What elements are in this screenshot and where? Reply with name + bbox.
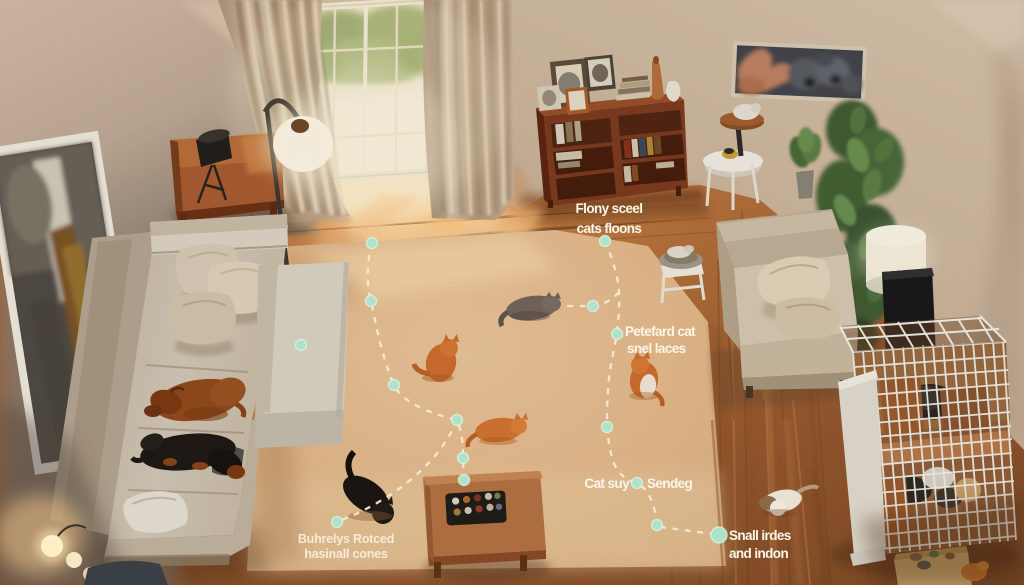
svg-text:Petefard cat: Petefard cat [625, 324, 696, 339]
svg-text:Buhrelys Rotced: Buhrelys Rotced [298, 532, 394, 546]
svg-text:hasinall cones: hasinall cones [304, 547, 388, 561]
svg-text:snel laces: snel laces [627, 341, 686, 356]
svg-text:Snall irdes: Snall irdes [729, 528, 791, 543]
svg-text:Cat suy: Cat suy [584, 476, 630, 491]
svg-text:Flony sceel: Flony sceel [576, 201, 643, 216]
svg-text:and indon: and indon [729, 546, 788, 561]
svg-text:Sendeg: Sendeg [647, 476, 693, 491]
svg-text:cats floons: cats floons [577, 221, 642, 236]
